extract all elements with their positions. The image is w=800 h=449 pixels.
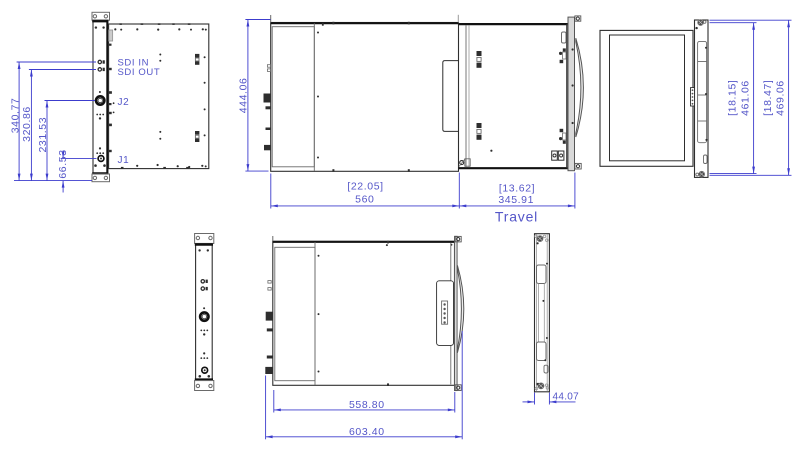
svg-text:SDI OUT: SDI OUT — [118, 67, 161, 78]
svg-text:Travel: Travel — [495, 209, 538, 225]
svg-text:J1: J1 — [118, 155, 130, 166]
svg-text:345.91: 345.91 — [498, 194, 534, 206]
svg-text:603.40: 603.40 — [349, 426, 385, 438]
svg-text:560: 560 — [355, 194, 374, 206]
svg-text:J2: J2 — [118, 97, 130, 108]
svg-text:320.86: 320.86 — [21, 106, 33, 142]
svg-text:66.53: 66.53 — [57, 149, 69, 178]
svg-text:[18.47]: [18.47] — [762, 80, 774, 116]
svg-text:558.80: 558.80 — [349, 399, 385, 411]
svg-text:[13.62]: [13.62] — [499, 182, 535, 194]
svg-text:231.53: 231.53 — [37, 117, 49, 153]
svg-text:[18.15]: [18.15] — [726, 80, 738, 116]
svg-text:44.07: 44.07 — [553, 391, 580, 402]
svg-text:[22.05]: [22.05] — [347, 181, 383, 193]
svg-text:461.06: 461.06 — [739, 80, 751, 116]
svg-text:340.77: 340.77 — [9, 98, 21, 134]
svg-text:444.06: 444.06 — [238, 78, 250, 114]
svg-text:469.06: 469.06 — [775, 80, 787, 116]
